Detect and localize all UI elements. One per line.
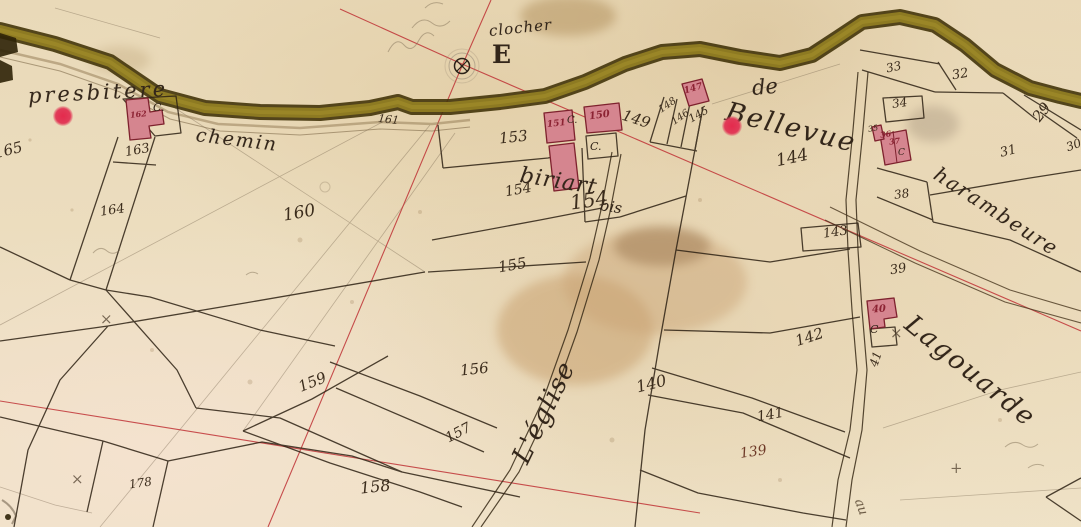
courtyard-mark: C. [153,101,165,114]
x-mark: × [71,470,84,488]
parcel-number: 164 [99,201,126,219]
parcel-number: 178 [128,474,153,491]
label-harambeure: harambeure [929,162,1063,261]
cadastral-map-canvas[interactable]: presbiterecheminclocherEdeBellevuebiriar… [0,0,1081,527]
parcel-number: 41 [867,350,885,369]
x-mark: × [890,324,903,342]
parcel-number: 141 [756,405,785,425]
parcel-number: 149 [620,106,653,132]
building-number: 151 [547,118,567,130]
courtyard-mark: C [870,323,878,336]
parcel-number: 139 [739,442,768,462]
label-lagouarde: Lagouarde [899,309,1042,433]
label-au: au [851,497,871,517]
parcel-number: 161 [377,112,399,127]
x-mark: + [950,459,963,477]
parcel-number: 30 [1064,136,1081,154]
parcel-number: 35 [867,123,879,134]
label-de: de [751,74,779,100]
parcel-number: 31 [998,142,1018,161]
red-marker-dot [722,116,742,136]
building-number: 37 [888,135,900,146]
building-number: 40 [872,304,887,316]
building-number: 162 [130,108,148,120]
parcel-number: 148 [657,96,679,116]
parcel-number: 163 [124,141,151,160]
parcel-number: 143 [822,223,849,241]
parcel-number: 157 [443,420,474,447]
red-marker-dot [53,106,73,126]
label-clocher: clocher [488,15,553,40]
parcel-number: 153 [498,127,528,148]
parcel-number: 165 [0,138,24,162]
parcel-number: 160 [282,200,317,225]
parcel-number: 33 [885,59,903,76]
parcel-number: 156 [459,359,489,380]
building-number: 150 [588,109,610,123]
label-presbitere: presbitere [27,77,168,108]
parcel-number: 29 [1029,99,1055,125]
parcel-number: 159 [296,368,329,395]
parcel-number: 34 [891,95,908,111]
parcel-number: 39 [889,261,908,279]
label-chemin: chemin [195,124,280,156]
map-label-overlay: presbiterecheminclocherEdeBellevuebiriar… [0,0,1081,527]
parcel-number: 144 [774,145,810,171]
parcel-number: 140 [634,371,668,397]
parcel-number: 38 [893,186,910,202]
parcel-number: 155 [497,254,528,277]
parcel-number: 32 [951,66,970,84]
parcel-number: 145 [686,104,711,126]
label-letter-e: E [492,40,511,69]
parcel-number: 154 [504,180,533,200]
parcel-number: 142 [793,324,826,350]
building-number: 147 [683,82,704,97]
courtyard-mark: C. [590,140,602,153]
label-leglise: L'église [507,357,582,469]
courtyard-mark: C. [567,115,577,126]
parcel-number: 158 [359,475,391,497]
x-mark: × [100,310,113,328]
courtyard-mark: C [898,148,905,158]
